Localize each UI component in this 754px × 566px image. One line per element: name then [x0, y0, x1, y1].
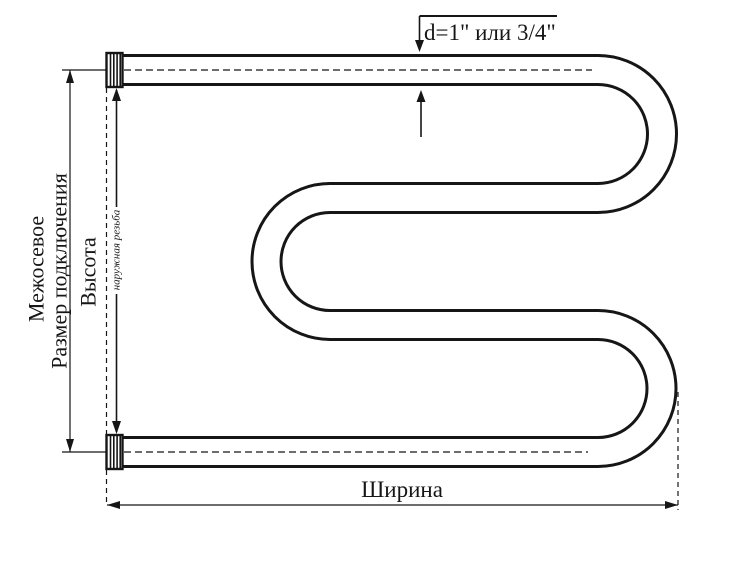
threaded-fitting-top: [107, 53, 123, 87]
interaxial-label-line2: Размер подключения: [47, 173, 72, 369]
arrowhead-down: [66, 439, 74, 452]
arrowhead-right: [665, 501, 678, 509]
pipe-center-axes: [124, 70, 592, 452]
width-label: Ширина: [361, 477, 443, 502]
diagram-page: d=1" или 3/4" Межосевое Размер подключен…: [0, 0, 754, 566]
diagram-canvas: d=1" или 3/4" Межосевое Размер подключен…: [0, 0, 754, 566]
arrowhead-down: [112, 421, 121, 434]
thread-label: наружная резьба: [110, 209, 122, 290]
arrowhead-up: [112, 88, 121, 101]
threaded-fitting-bottom: [107, 435, 123, 469]
arrowhead-down: [415, 40, 424, 52]
interaxial-label-line1: Межосевое: [24, 216, 49, 322]
height-label: Высота: [76, 237, 101, 307]
diameter-label: d=1" или 3/4": [424, 20, 556, 45]
arrowhead-up: [66, 70, 74, 83]
pipe-body: [122, 70, 662, 452]
arrowhead-left: [107, 501, 120, 509]
arrowhead-up: [417, 90, 426, 102]
pipe: [122, 70, 662, 452]
pipe-outline: [122, 70, 662, 452]
